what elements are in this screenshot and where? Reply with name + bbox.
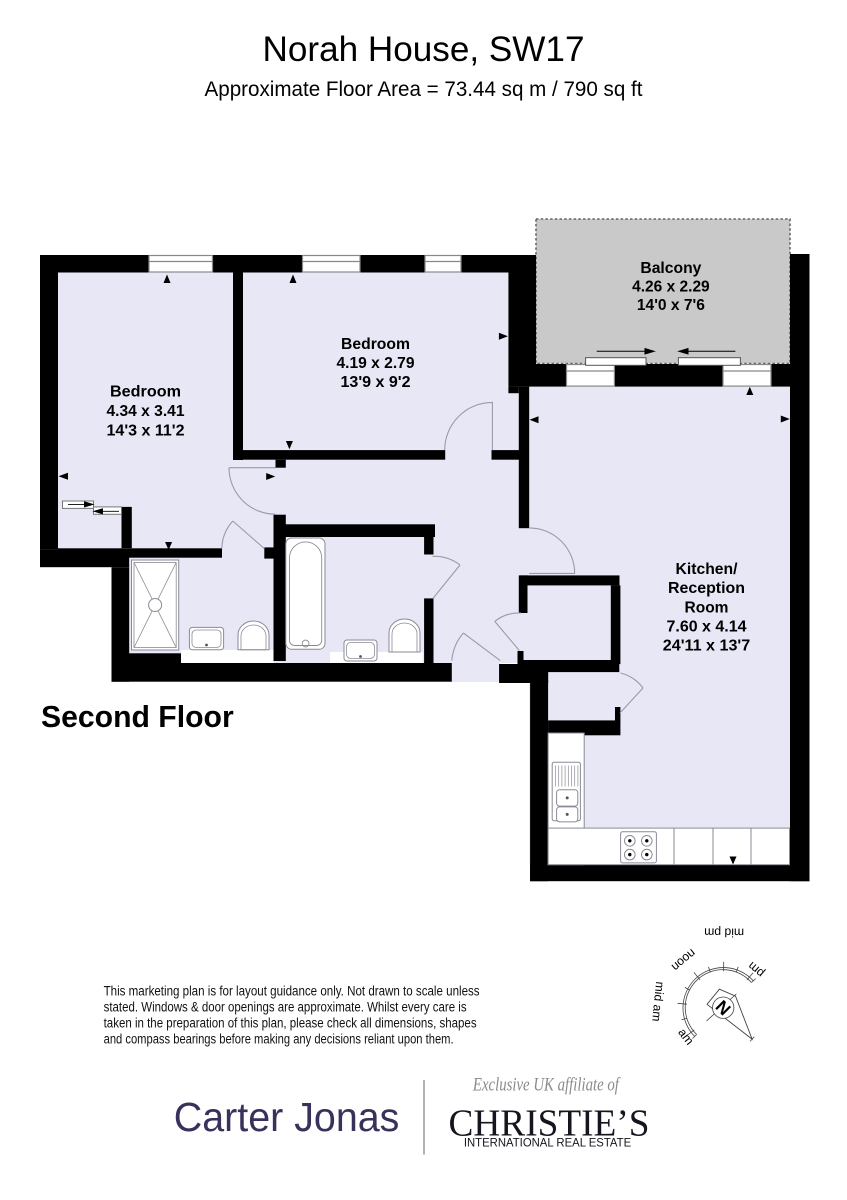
svg-text:Approximate Floor Area = 73.44: Approximate Floor Area = 73.44 sq m / 79… xyxy=(205,78,643,101)
svg-text:13'9 x 9'2: 13'9 x 9'2 xyxy=(341,374,411,391)
svg-text:and compass bearings before ma: and compass bearings before making any d… xyxy=(104,1032,454,1047)
svg-text:Balcony: Balcony xyxy=(640,260,701,277)
svg-text:INTERNATIONAL REAL ESTATE: INTERNATIONAL REAL ESTATE xyxy=(464,1136,631,1150)
svg-text:Room: Room xyxy=(685,599,729,616)
svg-text:4.34 x 3.41: 4.34 x 3.41 xyxy=(107,403,185,420)
svg-text:14'3 x 11'2: 14'3 x 11'2 xyxy=(107,423,185,440)
svg-text:This marketing plan is for lay: This marketing plan is for layout guidan… xyxy=(104,984,480,999)
svg-text:Kitchen/: Kitchen/ xyxy=(676,561,739,578)
svg-text:Exclusive UK affiliate of: Exclusive UK affiliate of xyxy=(472,1075,621,1096)
svg-text:Reception: Reception xyxy=(668,580,745,597)
svg-text:24'11 x 13'7: 24'11 x 13'7 xyxy=(663,638,751,655)
svg-text:Norah House, SW17: Norah House, SW17 xyxy=(263,29,585,69)
svg-text:stated. Windows & door opening: stated. Windows & door openings are appr… xyxy=(104,1000,467,1015)
svg-text:mid pm: mid pm xyxy=(704,925,744,939)
svg-text:14'0 x 7'6: 14'0 x 7'6 xyxy=(637,297,705,314)
svg-text:Bedroom: Bedroom xyxy=(110,384,181,401)
svg-text:Second Floor: Second Floor xyxy=(41,700,234,734)
svg-text:4.19 x 2.79: 4.19 x 2.79 xyxy=(337,355,415,372)
svg-text:Bedroom: Bedroom xyxy=(341,336,410,353)
svg-text:7.60 x 4.14: 7.60 x 4.14 xyxy=(667,618,747,635)
svg-text:4.26 x 2.29: 4.26 x 2.29 xyxy=(632,279,710,296)
svg-text:Carter Jonas: Carter Jonas xyxy=(174,1094,400,1140)
svg-text:taken in the preparation of th: taken in the preparation of this plan, p… xyxy=(104,1016,477,1031)
